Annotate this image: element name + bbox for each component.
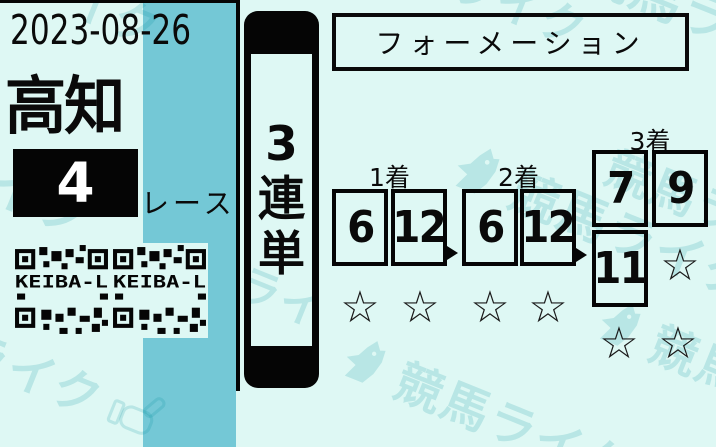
star-icon: ☆ bbox=[597, 322, 641, 366]
horse-number-box: 6 bbox=[332, 189, 388, 266]
method-label: フォーメーション bbox=[375, 22, 645, 62]
horse-number-box: 9 bbox=[652, 150, 708, 227]
bet-type-char: 3 bbox=[265, 121, 298, 169]
horse-number-box: 12 bbox=[520, 189, 576, 266]
horse-number-box: 6 bbox=[462, 189, 518, 266]
star-icon: ☆ bbox=[658, 244, 702, 288]
qr-keiba-label: KEIBA-L bbox=[15, 272, 108, 292]
race-date: 2023-08-26 bbox=[10, 6, 191, 54]
qr-keiba-label: KEIBA-L bbox=[113, 272, 206, 292]
horse-head-icon bbox=[332, 328, 400, 396]
horse-number: 7 bbox=[607, 163, 633, 214]
horse-number: 12 bbox=[522, 202, 575, 253]
accent-band bbox=[143, 0, 236, 447]
formation-arrow-icon bbox=[447, 246, 458, 260]
top-border-line bbox=[0, 0, 240, 3]
bet-type-window: 3 連 単 競馬ライク bbox=[251, 54, 312, 346]
horse-number-box: 12 bbox=[391, 189, 447, 266]
vertical-divider-line bbox=[236, 0, 240, 391]
qr-pattern-icon: KEIBA-L bbox=[13, 243, 110, 338]
horse-number: 11 bbox=[594, 243, 647, 294]
horse-number: 6 bbox=[347, 202, 373, 253]
race-number: 4 bbox=[56, 151, 94, 215]
qr-pattern-icon: KEIBA-L bbox=[111, 243, 208, 338]
formation-arrow-icon bbox=[576, 248, 587, 262]
betting-ticket: 競馬ライク 競馬ライク 競馬ライク 競馬ライク 競馬ライク 競馬ライク 競馬ライ… bbox=[0, 0, 716, 447]
race-number-box: 4 bbox=[13, 149, 138, 217]
qr-code: KEIBA-L bbox=[13, 243, 110, 338]
watermark-group: 競馬ライク bbox=[328, 319, 643, 447]
star-icon: ☆ bbox=[468, 286, 512, 330]
horse-number: 6 bbox=[477, 202, 503, 253]
bet-type-pill: 3 連 単 競馬ライク bbox=[244, 11, 319, 388]
horse-number: 9 bbox=[667, 163, 693, 214]
star-icon: ☆ bbox=[526, 286, 570, 330]
race-label: レース bbox=[141, 182, 236, 222]
venue-name: 高知 bbox=[5, 74, 123, 140]
bet-type-char: 連 bbox=[258, 176, 305, 224]
star-icon: ☆ bbox=[338, 286, 382, 330]
horse-number-box: 7 bbox=[592, 150, 648, 227]
star-icon: ☆ bbox=[656, 322, 700, 366]
star-icon: ☆ bbox=[398, 286, 442, 330]
horse-number-box: 11 bbox=[592, 230, 648, 307]
qr-code: KEIBA-L bbox=[111, 243, 208, 338]
horse-number: 12 bbox=[393, 202, 446, 253]
method-box: フォーメーション bbox=[332, 13, 689, 71]
